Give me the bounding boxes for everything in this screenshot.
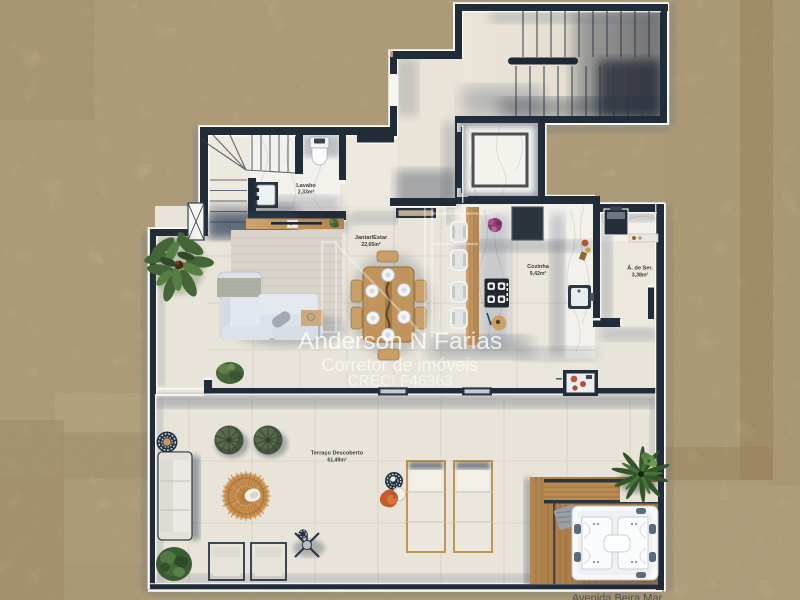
svg-text:Avenida Beira Mar: Avenida Beira Mar <box>572 593 663 600</box>
svg-text:Jantar/Estar: Jantar/Estar <box>355 235 388 241</box>
svg-text:2,33m²: 2,33m² <box>298 190 315 196</box>
svg-text:Cozinha: Cozinha <box>527 264 550 270</box>
svg-text:9,42m²: 9,42m² <box>530 271 547 277</box>
svg-text:Á. de Ser.: Á. de Ser. <box>627 265 653 272</box>
svg-text:Lavabo: Lavabo <box>296 183 316 189</box>
svg-text:Terraço Descoberto: Terraço Descoberto <box>311 451 364 457</box>
svg-text:22,65m²: 22,65m² <box>361 242 381 248</box>
svg-text:Corretor de imóveis: Corretor de imóveis <box>321 355 478 375</box>
svg-text:CRECI F46363: CRECI F46363 <box>347 373 452 390</box>
svg-text:61,49m²: 61,49m² <box>327 458 347 464</box>
svg-text:Anderson N Farias: Anderson N Farias <box>298 328 502 355</box>
svg-text:3,38m²: 3,38m² <box>632 273 649 279</box>
